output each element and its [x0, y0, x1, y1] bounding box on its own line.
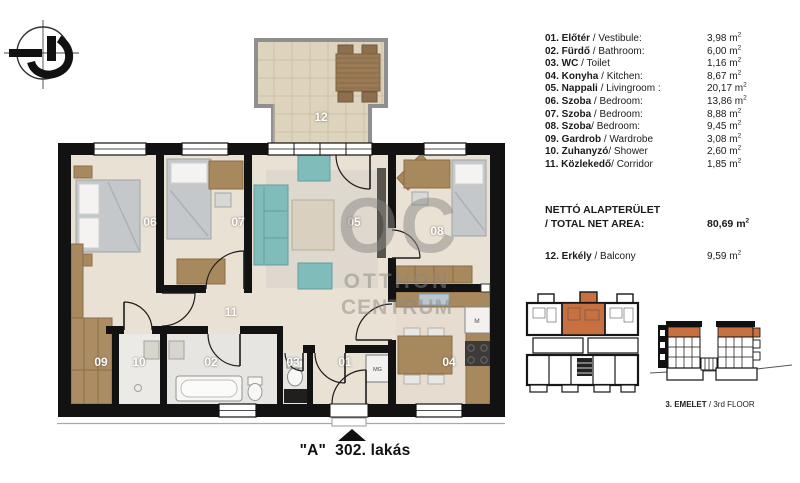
highlighted-floor: [668, 327, 700, 337]
wall-niche: [481, 284, 490, 292]
floor-caption: 3. EMELET / 3rd FLOOR: [640, 400, 780, 409]
svg-text:MG: MG: [373, 367, 382, 373]
svg-text:OC: OC: [338, 181, 459, 269]
balcony-legend-row: 12. Erkély / Balcony9,59 m2: [545, 251, 770, 264]
svg-text:M: M: [474, 318, 479, 325]
double-bed: [76, 180, 140, 252]
balcony: [256, 40, 386, 146]
cabinet: [177, 259, 225, 284]
desk: [209, 161, 243, 189]
svg-text:CENTRUM: CENTRUM: [341, 296, 453, 319]
fridge: M: [465, 307, 490, 333]
svg-text:OTTHON: OTTHON: [344, 270, 451, 293]
legend-row: 09. Gardrob / Wardrobe3,08 m2: [545, 134, 770, 147]
legend-row: 08. Szoba/ Bedroom:9,45 m2: [545, 121, 770, 134]
total-line2: / TOTAL NET AREA:80,69 m2: [545, 218, 770, 232]
entrance-stoop: [332, 418, 366, 426]
room-label-09: 09: [94, 355, 108, 369]
stove: [465, 341, 490, 366]
room-label-04: 04: [442, 355, 456, 369]
window: [182, 143, 228, 155]
building-elevation: [650, 321, 792, 380]
nightstand: [74, 166, 92, 178]
legend-row: 11. Közlekedő/ Corridor1,85 m2: [545, 159, 770, 172]
legend-row: 10. Zuhanyzó/ Shower2,60 m2: [545, 146, 770, 159]
window: [94, 143, 146, 155]
room-label-11: 11: [225, 305, 238, 319]
washing-machine: MG: [366, 355, 389, 382]
window: [424, 143, 466, 155]
toilet: [248, 377, 262, 401]
room-label-03: 03: [286, 355, 300, 369]
bathroom-sink: [169, 341, 184, 359]
legend-row: 07. Szoba / Bedroom:8,88 m2: [545, 109, 770, 122]
room-label-12: 12: [314, 110, 328, 124]
otthon-centrum-watermark: OC OTTHON CENTRUM: [338, 181, 459, 319]
legend-row: 06. Szoba / Bedroom:13,86 m2: [545, 96, 770, 109]
armchair: [298, 263, 332, 289]
floorplan-page: M: [0, 0, 800, 483]
single-bed: [167, 159, 211, 239]
legend-row: 05. Nappali / Livingroom :20,17 m2: [545, 83, 770, 96]
highlighted-floor: [718, 327, 753, 337]
window: [219, 404, 256, 417]
bathtub: [176, 376, 242, 401]
legend-row: 02. Fürdő / Bathroom:6,00 m2: [545, 46, 770, 59]
room-label-06: 06: [143, 215, 157, 229]
armchair: [298, 155, 330, 181]
room-label-10: 10: [132, 355, 146, 369]
balcony-door: [268, 143, 372, 155]
apartment-title: "A" 302. lakás: [250, 442, 460, 460]
sofa: [254, 185, 288, 265]
wardrobe: [71, 244, 83, 318]
duct-shaft: [284, 389, 307, 403]
legend-row: 01. Előtér / Vestibule:3,98 m2: [545, 33, 770, 46]
chair: [215, 193, 231, 207]
key-plan: [527, 292, 638, 392]
compass-north-icon: [4, 20, 79, 89]
room-label-02: 02: [204, 355, 218, 369]
entrance-door-opening: [330, 404, 368, 426]
coffee-table: [292, 200, 334, 250]
shower-sink: [144, 341, 159, 359]
legend-row: 03. WC / Toilet1,16 m2: [545, 58, 770, 71]
legend-row: 04. Konyha / Kitchen:8,67 m2: [545, 71, 770, 84]
total-net-area: NETTÓ ALAPTERÜLET / TOTAL NET AREA:80,69…: [545, 204, 770, 231]
stair-core: [577, 358, 592, 376]
entrance-marker-triangle: [338, 429, 366, 441]
room-label-01: 01: [338, 355, 352, 369]
room-legend: 01. Előtér / Vestibule:3,98 m2 02. Fürdő…: [545, 33, 770, 172]
window: [416, 404, 462, 417]
room-label-07: 07: [231, 215, 245, 229]
total-line1: NETTÓ ALAPTERÜLET: [545, 204, 770, 218]
